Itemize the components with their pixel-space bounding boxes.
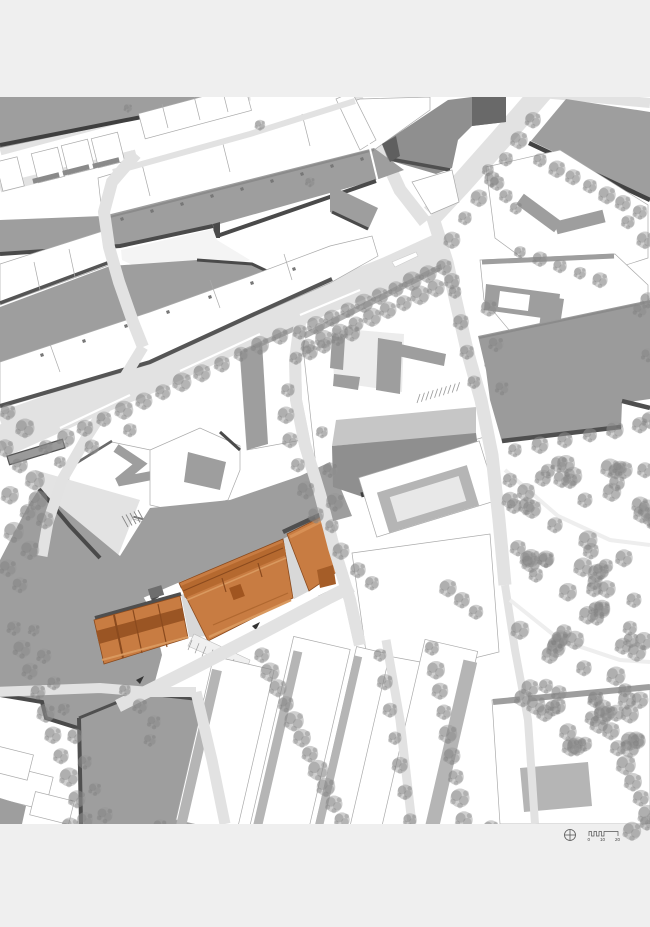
svg-text:20: 20 xyxy=(615,837,621,842)
svg-text:10: 10 xyxy=(600,837,606,842)
